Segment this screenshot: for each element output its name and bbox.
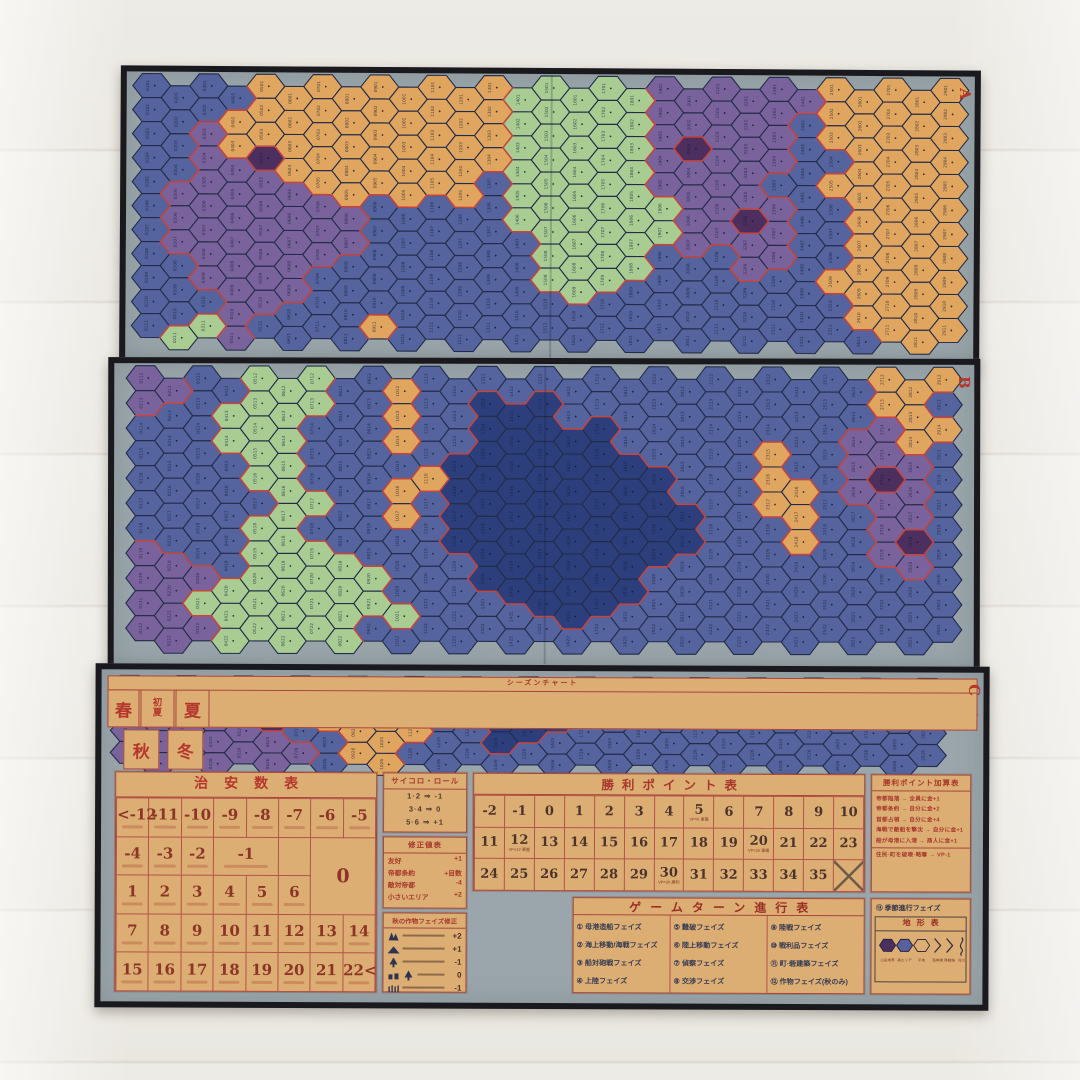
vp-cell: 5VP=5·軍艦 [684, 796, 714, 828]
vp-bonus-title: 勝利ポイント加算表 [872, 775, 970, 791]
svg-text:2822: 2822 [908, 637, 914, 648]
modifier-line: 小さいエリア+2 [384, 889, 466, 901]
svg-text:0603: 0603 [287, 141, 293, 152]
svg-text:2521: 2521 [822, 599, 828, 610]
turn-phase: ④上陸フェイズ [576, 972, 666, 990]
svg-text:0220: 0220 [167, 585, 173, 596]
svg-text:1019: 1019 [395, 560, 401, 571]
svg-text:1422: 1422 [509, 636, 515, 647]
svg-text:0422: 0422 [224, 635, 230, 646]
dice-roll-title: サイコロ・ロール [384, 773, 466, 789]
svg-text:0120: 0120 [138, 572, 144, 583]
svg-text:2921: 2921 [936, 599, 942, 610]
svg-text:1620: 1620 [566, 586, 572, 597]
svg-text:0318: 0318 [195, 523, 201, 534]
svg-text:1612: 1612 [566, 386, 572, 397]
svg-text:0412: 0412 [224, 385, 230, 396]
svg-text:1917: 1917 [651, 498, 657, 509]
svg-text:1616: 1616 [566, 486, 572, 497]
svg-text:1412: 1412 [509, 386, 515, 397]
svg-text:0308: 0308 [201, 248, 207, 259]
svg-text:2302: 2302 [772, 108, 778, 119]
svg-text:2809: 2809 [913, 288, 919, 299]
svg-text:2618: 2618 [851, 536, 857, 547]
svg-text:2718: 2718 [879, 524, 885, 535]
vp-cell: 10 [834, 797, 864, 829]
svg-text:1222: 1222 [452, 636, 458, 647]
svg-text:0807: 0807 [344, 237, 350, 248]
modifier-line: 帝都条約+目数 [384, 865, 466, 877]
svg-text:2815: 2815 [908, 462, 914, 473]
svg-text:1301: 1301 [487, 82, 493, 93]
svg-text:0201: 0201 [173, 92, 179, 103]
svg-text:1815: 1815 [623, 461, 629, 472]
svg-text:2605: 2605 [857, 192, 863, 203]
dice-roll-line: 5·6 ⇒ +1 [384, 815, 466, 828]
svg-text:0426: 0426 [208, 758, 214, 769]
svg-text:2317: 2317 [765, 499, 771, 510]
svg-text:2316: 2316 [765, 474, 771, 485]
svg-text:2403: 2403 [800, 144, 806, 155]
svg-text:1512: 1512 [538, 373, 544, 384]
svg-text:0402: 0402 [230, 116, 236, 127]
svg-text:1903: 1903 [658, 131, 664, 142]
vp-cell: 24 [474, 859, 504, 891]
svg-text:2819: 2819 [908, 562, 914, 573]
svg-text:1014: 1014 [395, 435, 401, 446]
turn-phase: ⑤難破フェイズ [674, 919, 764, 937]
svg-text:1515: 1515 [537, 448, 543, 459]
svg-text:2005: 2005 [686, 191, 692, 202]
svg-text:2313: 2313 [766, 399, 772, 410]
svg-text:2306: 2306 [771, 204, 777, 215]
svg-text:1921: 1921 [651, 598, 657, 609]
svg-text:2615: 2615 [851, 461, 857, 472]
svg-text:2516: 2516 [822, 474, 828, 485]
svg-text:0705: 0705 [315, 177, 321, 188]
svg-text:1707: 1707 [600, 227, 606, 238]
svg-text:2611: 2611 [856, 336, 862, 347]
autumn-crop-modifier-box: 秋の作物フェイズ修正 +2+1-10-1 [382, 912, 466, 992]
svg-text:2613: 2613 [851, 411, 857, 422]
svg-text:0509: 0509 [258, 272, 264, 283]
svg-text:0211: 0211 [172, 332, 178, 343]
svg-text:0618: 0618 [281, 535, 287, 546]
svg-text:1622: 1622 [566, 636, 572, 647]
svg-text:1517: 1517 [537, 498, 543, 509]
svg-text:0406: 0406 [230, 212, 236, 223]
svg-text:2404: 2404 [800, 168, 806, 179]
svg-text:0811: 0811 [343, 333, 349, 344]
security-cell: -1 [213, 837, 278, 876]
svg-text:0808: 0808 [343, 261, 349, 272]
svg-text:0404: 0404 [230, 164, 236, 175]
svg-text:2116: 2116 [708, 474, 714, 485]
security-cell: 5 [246, 876, 279, 915]
svg-text:1110: 1110 [429, 298, 435, 309]
svg-text:2210: 2210 [742, 311, 748, 322]
svg-text:0909: 0909 [372, 273, 378, 284]
svg-text:1113: 1113 [424, 398, 430, 409]
svg-text:0809: 0809 [343, 285, 349, 296]
svg-text:0102: 0102 [145, 104, 151, 115]
svg-text:2310: 2310 [771, 300, 777, 311]
svg-text:0416: 0416 [224, 485, 230, 496]
svg-text:0913: 0913 [367, 398, 373, 409]
svg-text:平地: 平地 [918, 957, 926, 962]
svg-text:1905: 1905 [657, 179, 663, 190]
svg-text:0505: 0505 [258, 176, 264, 187]
svg-text:0917: 0917 [366, 498, 372, 509]
security-cell [278, 837, 311, 876]
security-cell: 20 [278, 953, 311, 992]
turn-table-title: ゲームターン進行表 [574, 898, 864, 916]
vp-cell: 16 [624, 827, 654, 859]
svg-text:2821: 2821 [908, 612, 914, 623]
svg-text:0115: 0115 [138, 447, 144, 458]
season-cell: 春 [107, 689, 139, 727]
svg-text:1518: 1518 [537, 523, 543, 534]
svg-text:2813: 2813 [908, 412, 914, 423]
svg-text:1411: 1411 [514, 334, 520, 345]
svg-text:2103: 2103 [715, 131, 721, 142]
svg-text:0206: 0206 [173, 212, 179, 223]
security-number-table: 治安数表 <-12-11-10-9-8-7-6-5-4-3-2-10123456… [114, 771, 377, 992]
svg-text:1720: 1720 [594, 573, 600, 584]
svg-text:1202: 1202 [458, 118, 464, 129]
svg-text:1703: 1703 [601, 131, 607, 142]
svg-text:2716: 2716 [879, 474, 885, 485]
svg-text:2408: 2408 [799, 264, 805, 275]
svg-text:移動路: 移動路 [944, 958, 955, 963]
svg-text:0409: 0409 [229, 284, 235, 295]
svg-text:2511: 2511 [828, 324, 834, 335]
svg-text:1813: 1813 [623, 411, 629, 422]
svg-text:1802: 1802 [629, 119, 635, 130]
svg-text:2906: 2906 [942, 205, 948, 216]
svg-text:1520: 1520 [537, 573, 543, 584]
svg-text:2420: 2420 [794, 586, 800, 597]
svg-text:1112: 1112 [424, 373, 430, 384]
svg-text:2419: 2419 [794, 561, 800, 572]
svg-text:1801: 1801 [629, 95, 635, 106]
season-phase-terrain-box: ⑬ 季節進行フェイズ 地形表 山岳地帯森エリア平地海岸線移動路河川 [870, 898, 970, 994]
svg-text:2111: 2111 [714, 323, 720, 334]
svg-text:0716: 0716 [309, 473, 315, 484]
svg-text:0203: 0203 [173, 140, 179, 151]
svg-text:0222: 0222 [167, 635, 173, 646]
svg-text:1007: 1007 [401, 237, 407, 248]
svg-text:1321: 1321 [480, 598, 486, 609]
svg-text:2901: 2901 [943, 85, 949, 96]
svg-text:1310: 1310 [486, 298, 492, 309]
svg-text:2722: 2722 [879, 624, 885, 635]
svg-text:2807: 2807 [914, 240, 920, 251]
svg-text:2509: 2509 [828, 276, 834, 287]
svg-text:山岳地帯: 山岳地帯 [880, 957, 895, 962]
svg-text:2711: 2711 [885, 324, 891, 335]
svg-text:1603: 1603 [572, 142, 578, 153]
svg-text:0813: 0813 [338, 410, 344, 421]
svg-text:2321: 2321 [765, 599, 771, 610]
svg-text:0502: 0502 [259, 104, 265, 115]
svg-text:2126: 2126 [693, 749, 699, 760]
svg-text:2421: 2421 [794, 611, 800, 622]
vp-cell: 25 [504, 859, 534, 891]
svg-text:1303: 1303 [487, 130, 493, 141]
svg-text:0401: 0401 [230, 92, 236, 103]
vp-cell: 9 [804, 797, 834, 829]
svg-text:0320: 0320 [195, 573, 201, 584]
svg-text:0914: 0914 [366, 423, 372, 434]
svg-text:1020: 1020 [395, 585, 401, 596]
svg-text:2013: 2013 [680, 411, 686, 422]
svg-text:2911: 2911 [942, 325, 948, 336]
svg-text:2905: 2905 [942, 181, 948, 192]
svg-text:1012: 1012 [395, 385, 401, 396]
svg-text:2514: 2514 [822, 424, 828, 435]
svg-text:1818: 1818 [623, 536, 629, 547]
svg-text:2610: 2610 [856, 312, 862, 323]
svg-text:0617: 0617 [281, 510, 287, 521]
svg-text:0718: 0718 [309, 523, 315, 534]
svg-text:2414: 2414 [794, 436, 800, 447]
svg-text:2922: 2922 [936, 624, 942, 635]
svg-text:2616: 2616 [851, 486, 857, 497]
svg-text:2305: 2305 [771, 180, 777, 191]
svg-text:1121: 1121 [423, 598, 429, 609]
turn-phase: ⑫作物フェイズ(秋のみ) [770, 973, 860, 991]
svg-text:2318: 2318 [765, 524, 771, 535]
svg-text:0719: 0719 [309, 548, 315, 559]
svg-text:1820: 1820 [623, 586, 629, 597]
svg-text:2620: 2620 [851, 586, 857, 597]
svg-text:0107: 0107 [144, 224, 150, 235]
svg-text:2508: 2508 [828, 252, 834, 263]
svg-text:2608: 2608 [856, 264, 862, 275]
svg-text:0418: 0418 [224, 535, 230, 546]
svg-text:1102: 1102 [430, 106, 436, 117]
svg-text:1117: 1117 [423, 498, 429, 509]
svg-text:2108: 2108 [714, 251, 720, 262]
svg-text:0215: 0215 [167, 460, 173, 471]
svg-text:0616: 0616 [281, 485, 287, 496]
dice-roll-line: 1·2 ⇒ -1 [384, 789, 466, 802]
svg-text:0801: 0801 [344, 93, 350, 104]
svg-text:0620: 0620 [281, 585, 287, 596]
svg-text:1314: 1314 [480, 423, 486, 434]
vp-cell: 31 [684, 859, 714, 891]
svg-text:2006: 2006 [686, 215, 692, 226]
svg-text:0619: 0619 [281, 560, 287, 571]
forest-icon [388, 929, 400, 941]
svg-text:2416: 2416 [794, 486, 800, 497]
svg-text:2810: 2810 [913, 312, 919, 323]
svg-text:1106: 1106 [429, 202, 435, 213]
svg-text:河川: 河川 [958, 958, 966, 963]
svg-text:2517: 2517 [822, 499, 828, 510]
svg-text:1615: 1615 [566, 461, 572, 472]
svg-text:1717: 1717 [594, 498, 600, 509]
svg-text:1709: 1709 [600, 275, 606, 286]
season-cell: 夏 [175, 690, 209, 728]
svg-text:0109: 0109 [144, 272, 150, 283]
grass-icon [387, 981, 399, 993]
map-board-panel-a: 0101020103010401050106010701080109011001… [119, 65, 981, 368]
turn-phase: ②海上移動/海戦フェイズ [577, 936, 667, 954]
svg-text:1006: 1006 [401, 213, 407, 224]
svg-text:0104: 0104 [145, 152, 151, 163]
svg-text:0501: 0501 [259, 80, 265, 91]
svg-text:0613: 0613 [281, 410, 287, 421]
svg-text:2308: 2308 [771, 252, 777, 263]
svg-text:0204: 0204 [173, 164, 179, 175]
svg-text:1111: 1111 [429, 322, 435, 333]
svg-text:1611: 1611 [571, 334, 577, 345]
svg-text:2110: 2110 [714, 299, 720, 310]
svg-text:1606: 1606 [572, 214, 578, 225]
security-cell: -6 [311, 799, 344, 838]
svg-text:0522: 0522 [252, 623, 258, 634]
svg-text:2109: 2109 [714, 275, 720, 286]
svg-text:0726: 0726 [294, 747, 300, 758]
victory-point-table: 勝利ポイント表 -2-1012345VP=5·軍艦6789101112VP=12… [473, 773, 865, 893]
svg-text:0701: 0701 [316, 81, 322, 92]
svg-text:1209: 1209 [457, 286, 463, 297]
svg-text:2118: 2118 [708, 524, 714, 535]
svg-text:2804: 2804 [914, 168, 920, 179]
svg-text:0919: 0919 [366, 548, 372, 559]
security-cell: 14 [343, 915, 376, 954]
svg-text:1904: 1904 [658, 155, 664, 166]
svg-text:1913: 1913 [652, 398, 658, 409]
svg-text:2503: 2503 [829, 132, 835, 143]
svg-text:1507: 1507 [543, 226, 549, 237]
svg-text:1506: 1506 [543, 202, 549, 213]
svg-text:0212: 0212 [167, 385, 173, 396]
svg-text:2805: 2805 [914, 192, 920, 203]
svg-text:1619: 1619 [566, 561, 572, 572]
svg-text:2019: 2019 [680, 561, 686, 572]
vp-cell: 8 [774, 796, 804, 828]
svg-text:1722: 1722 [594, 623, 600, 634]
svg-text:2104: 2104 [715, 155, 721, 166]
svg-text:1714: 1714 [594, 423, 600, 434]
svg-text:0710: 0710 [315, 297, 321, 308]
vp-cell: 11 [474, 827, 504, 859]
svg-text:0112: 0112 [139, 372, 145, 383]
svg-text:2926: 2926 [921, 750, 927, 761]
svg-text:2207: 2207 [743, 239, 749, 250]
svg-text:2309: 2309 [771, 276, 777, 287]
svg-text:2117: 2117 [708, 499, 714, 510]
vp-cell: 17 [654, 828, 684, 860]
svg-text:0105: 0105 [144, 176, 150, 187]
svg-text:0605: 0605 [287, 189, 293, 200]
svg-text:2502: 2502 [829, 108, 835, 119]
svg-text:2304: 2304 [772, 156, 778, 167]
svg-text:0820: 0820 [338, 585, 344, 596]
svg-text:2004: 2004 [686, 167, 692, 178]
svg-text:0912: 0912 [367, 373, 373, 384]
svg-text:2301: 2301 [772, 84, 778, 95]
svg-text:1208: 1208 [457, 262, 463, 273]
svg-text:1420: 1420 [509, 586, 515, 597]
svg-text:1114: 1114 [423, 423, 429, 434]
svg-text:1618: 1618 [566, 536, 572, 547]
svg-text:2626: 2626 [835, 760, 841, 771]
svg-text:2702: 2702 [886, 108, 892, 119]
svg-text:2811: 2811 [913, 336, 919, 347]
vp-cell: 13 [534, 827, 564, 859]
svg-text:2001: 2001 [686, 95, 692, 106]
svg-text:1908: 1908 [657, 251, 663, 262]
svg-text:1313: 1313 [481, 398, 487, 409]
svg-text:2914: 2914 [936, 424, 942, 435]
svg-text:1002: 1002 [401, 117, 407, 128]
svg-text:2812: 2812 [908, 387, 914, 398]
security-cell: 21 [310, 953, 343, 992]
svg-text:0307: 0307 [201, 224, 207, 235]
svg-text:1601: 1601 [572, 94, 578, 105]
svg-text:0213: 0213 [167, 410, 173, 421]
svg-text:0614: 0614 [281, 435, 287, 446]
svg-text:1614: 1614 [566, 436, 572, 447]
svg-text:0703: 0703 [316, 129, 322, 140]
svg-text:1521: 1521 [537, 598, 543, 609]
svg-text:0722: 0722 [309, 623, 315, 634]
svg-text:0321: 0321 [195, 598, 201, 609]
svg-text:0806: 0806 [344, 213, 350, 224]
svg-text:1126: 1126 [408, 748, 414, 759]
svg-text:1226: 1226 [436, 759, 442, 770]
svg-text:2204: 2204 [743, 167, 749, 178]
svg-text:1009: 1009 [400, 285, 406, 296]
svg-text:2113: 2113 [709, 399, 715, 410]
svg-text:1816: 1816 [623, 486, 629, 497]
svg-text:2107: 2107 [714, 227, 720, 238]
svg-text:1808: 1808 [628, 263, 634, 274]
svg-text:0504: 0504 [259, 152, 265, 163]
svg-text:0821: 0821 [338, 610, 344, 621]
svg-text:2407: 2407 [800, 240, 806, 251]
svg-text:1409: 1409 [514, 286, 520, 297]
svg-text:2513: 2513 [823, 399, 829, 410]
svg-text:0216: 0216 [167, 485, 173, 496]
svg-text:2912: 2912 [937, 374, 943, 385]
svg-text:1610: 1610 [571, 310, 577, 321]
svg-text:2710: 2710 [885, 300, 891, 311]
svg-text:1821: 1821 [623, 611, 629, 622]
svg-text:1109: 1109 [429, 274, 435, 285]
svg-text:0622: 0622 [281, 635, 287, 646]
svg-text:2909: 2909 [942, 277, 948, 288]
svg-text:2808: 2808 [913, 264, 919, 275]
svg-text:1502: 1502 [544, 106, 550, 117]
svg-text:2707: 2707 [885, 228, 891, 239]
vp-bonus-line: 船が母港に入港 → 商人に金+1 [872, 833, 970, 844]
svg-text:2612: 2612 [851, 386, 857, 397]
svg-text:0103: 0103 [145, 128, 151, 139]
svg-text:1822: 1822 [623, 636, 629, 647]
svg-text:2003: 2003 [686, 143, 692, 154]
svg-text:0606: 0606 [287, 213, 293, 224]
svg-text:1814: 1814 [623, 436, 629, 447]
svg-text:0425: 0425 [208, 736, 214, 747]
svg-text:0407: 0407 [230, 236, 236, 247]
svg-text:1103: 1103 [430, 130, 436, 141]
vp-cell: 26 [534, 859, 564, 891]
